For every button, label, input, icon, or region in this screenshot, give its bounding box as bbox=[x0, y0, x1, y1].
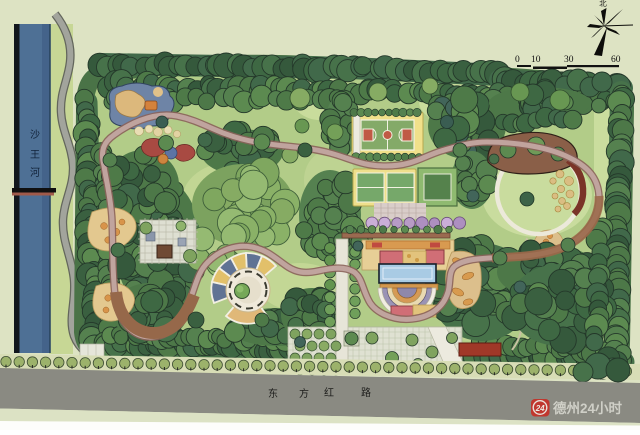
svg-text:北: 北 bbox=[599, 0, 607, 8]
svg-text:沙: 沙 bbox=[30, 129, 40, 141]
svg-text:王: 王 bbox=[30, 150, 40, 161]
svg-text:24: 24 bbox=[535, 404, 545, 413]
svg-text:河: 河 bbox=[30, 167, 40, 179]
svg-text:德州24小时: 德州24小时 bbox=[553, 400, 623, 416]
